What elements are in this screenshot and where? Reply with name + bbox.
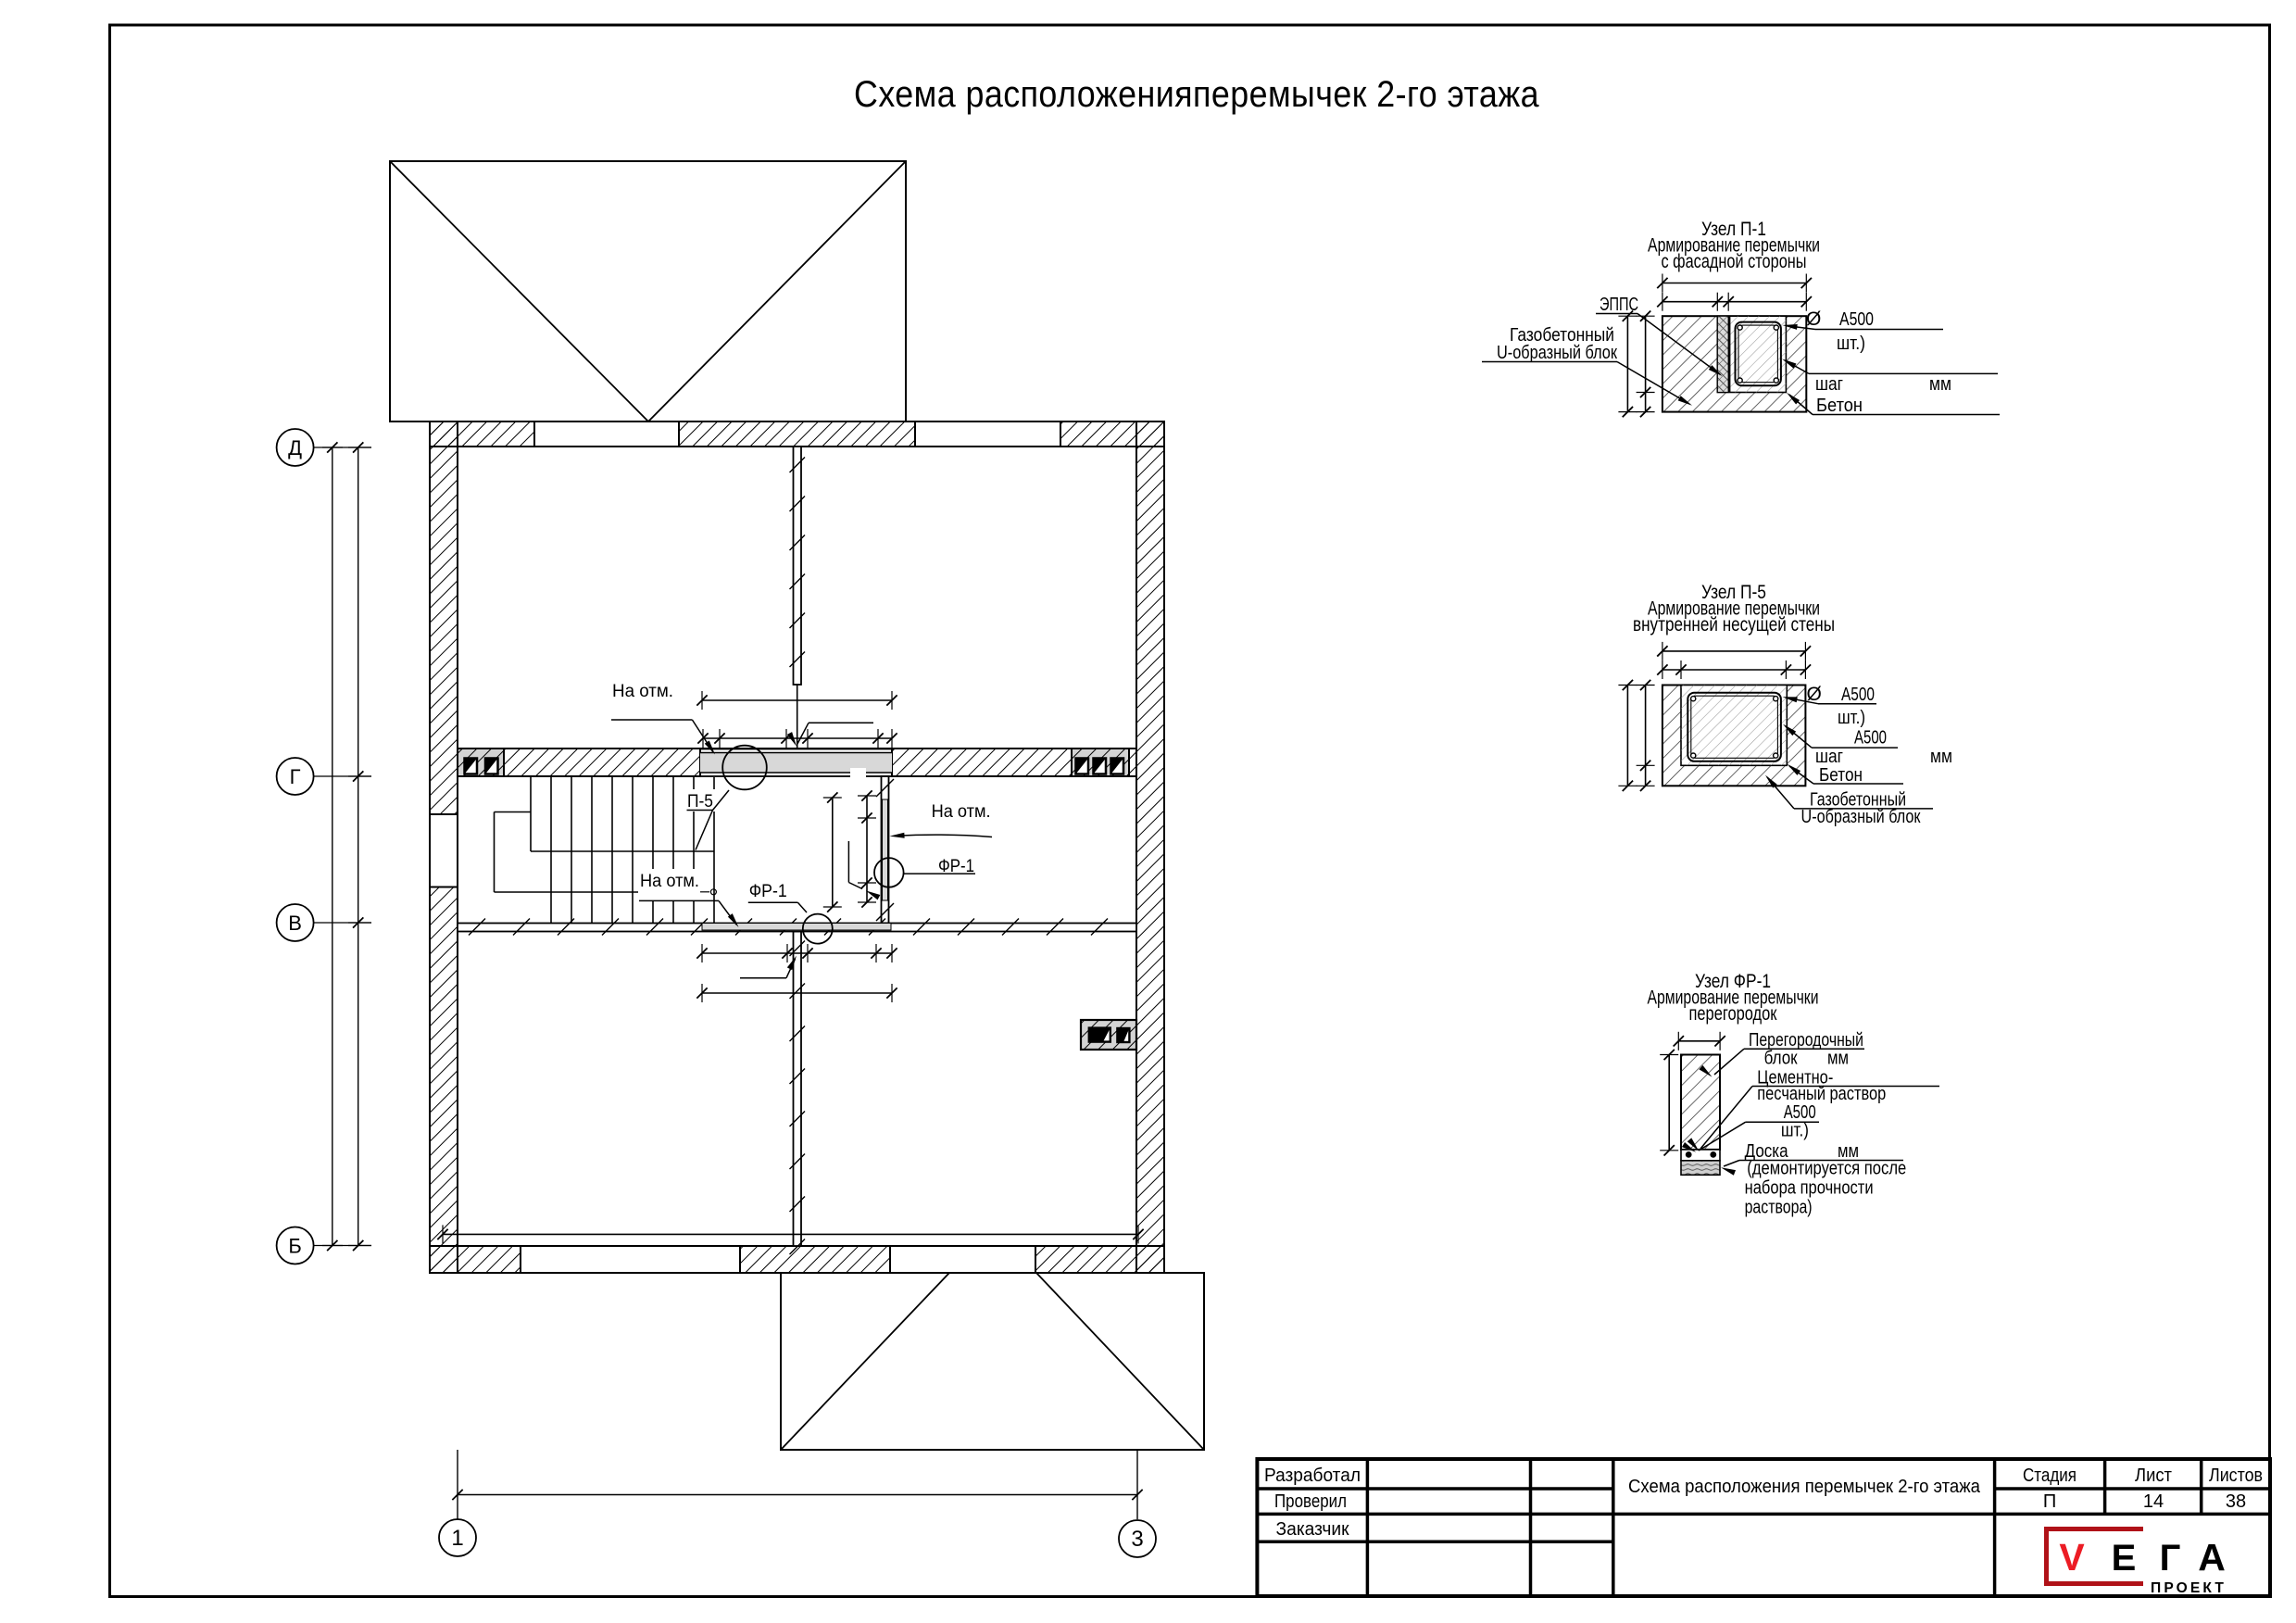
svg-text:раствора): раствора) xyxy=(1745,1198,1813,1218)
svg-text:шаг: шаг xyxy=(1815,374,1843,395)
svg-text:В: В xyxy=(288,912,302,935)
svg-text:Бетон: Бетон xyxy=(1819,765,1863,786)
svg-text:Ø: Ø xyxy=(1806,308,1821,330)
svg-text:На отм.: На отм. xyxy=(640,872,699,891)
svg-text:перегородок: перегородок xyxy=(1689,1003,1778,1025)
svg-text:песчаный раствор: песчаный раствор xyxy=(1757,1084,1886,1104)
svg-text:шт.): шт.) xyxy=(1838,708,1865,728)
svg-text:Г: Г xyxy=(290,765,301,788)
svg-text:Схема расположения перемычек 2: Схема расположения перемычек 2-го этажа xyxy=(1628,1477,1981,1497)
svg-text:с фасадной стороны: с фасадной стороны xyxy=(1662,251,1807,272)
svg-text:38: 38 xyxy=(2226,1491,2246,1512)
svg-text:П-5: П-5 xyxy=(687,792,713,811)
svg-text:Д: Д xyxy=(288,436,302,459)
svg-text:1: 1 xyxy=(451,1526,463,1551)
svg-text:Г: Г xyxy=(2160,1538,2181,1579)
svg-text:Е: Е xyxy=(2112,1538,2137,1579)
svg-text:Б: Б xyxy=(288,1235,301,1258)
svg-text:набора прочности: набора прочности xyxy=(1745,1178,1874,1199)
svg-text:блок: блок xyxy=(1764,1049,1798,1069)
svg-text:Стадия: Стадия xyxy=(2023,1466,2076,1486)
svg-text:U-образный блок: U-образный блок xyxy=(1801,807,1921,827)
svg-text:Листов: Листов xyxy=(2209,1466,2263,1486)
svg-text:На отм.: На отм. xyxy=(932,802,991,822)
svg-text:Лист: Лист xyxy=(2135,1466,2172,1486)
svg-text:На отм.: На отм. xyxy=(612,682,673,701)
svg-text:шаг: шаг xyxy=(1815,747,1843,767)
svg-text:Проверил: Проверил xyxy=(1274,1491,1347,1512)
svg-text:А500: А500 xyxy=(1841,685,1875,705)
svg-text:А500: А500 xyxy=(1854,728,1887,749)
svg-text:А500: А500 xyxy=(1839,309,1874,330)
svg-text:ЭППС: ЭППС xyxy=(1600,295,1638,315)
svg-text:3: 3 xyxy=(1131,1527,1143,1552)
svg-text:U-образный блок: U-образный блок xyxy=(1497,343,1617,363)
svg-text:Заказчик: Заказчик xyxy=(1276,1519,1349,1540)
svg-text:Разработал: Разработал xyxy=(1264,1466,1361,1486)
svg-text:внутренней несущей стены: внутренней несущей стены xyxy=(1633,614,1835,635)
svg-text:П: П xyxy=(2043,1491,2056,1512)
svg-text:мм: мм xyxy=(1827,1049,1849,1069)
svg-text:14: 14 xyxy=(2143,1491,2164,1512)
svg-text:А: А xyxy=(2198,1536,2226,1579)
svg-text:шт.): шт.) xyxy=(1781,1121,1809,1141)
svg-text:Схема расположенияперемычек 2-: Схема расположенияперемычек 2-го этажа xyxy=(854,74,1539,115)
svg-text:ФР-1: ФР-1 xyxy=(749,882,787,901)
svg-text:ПРОЕКТ: ПРОЕКТ xyxy=(2151,1580,2227,1596)
svg-text:Бетон: Бетон xyxy=(1816,396,1863,416)
svg-text:шт.): шт.) xyxy=(1837,333,1865,354)
svg-text:мм: мм xyxy=(1929,374,1951,395)
svg-text:(демонтируется после: (демонтируется после xyxy=(1747,1159,1906,1179)
svg-text:V: V xyxy=(2059,1536,2085,1579)
svg-text:мм: мм xyxy=(1930,747,1952,767)
